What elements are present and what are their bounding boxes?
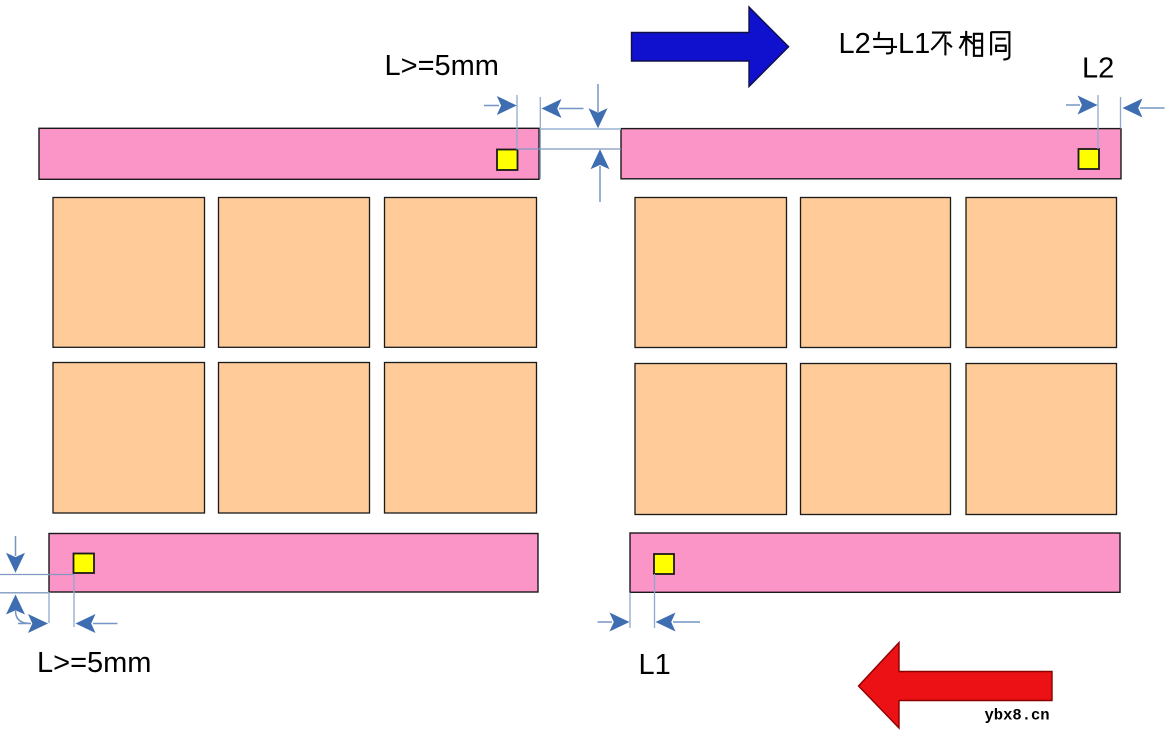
svg-text:L>=5mm: L>=5mm (37, 647, 151, 679)
svg-text:L1: L1 (639, 649, 671, 681)
svg-text:ybx8.cn: ybx8.cn (985, 707, 1050, 725)
svg-text:L2: L2 (1082, 53, 1114, 85)
svg-text:L>=5mm: L>=5mm (385, 50, 499, 82)
svg-text:L1: L1 (898, 28, 930, 60)
svg-text:L2: L2 (839, 28, 871, 60)
